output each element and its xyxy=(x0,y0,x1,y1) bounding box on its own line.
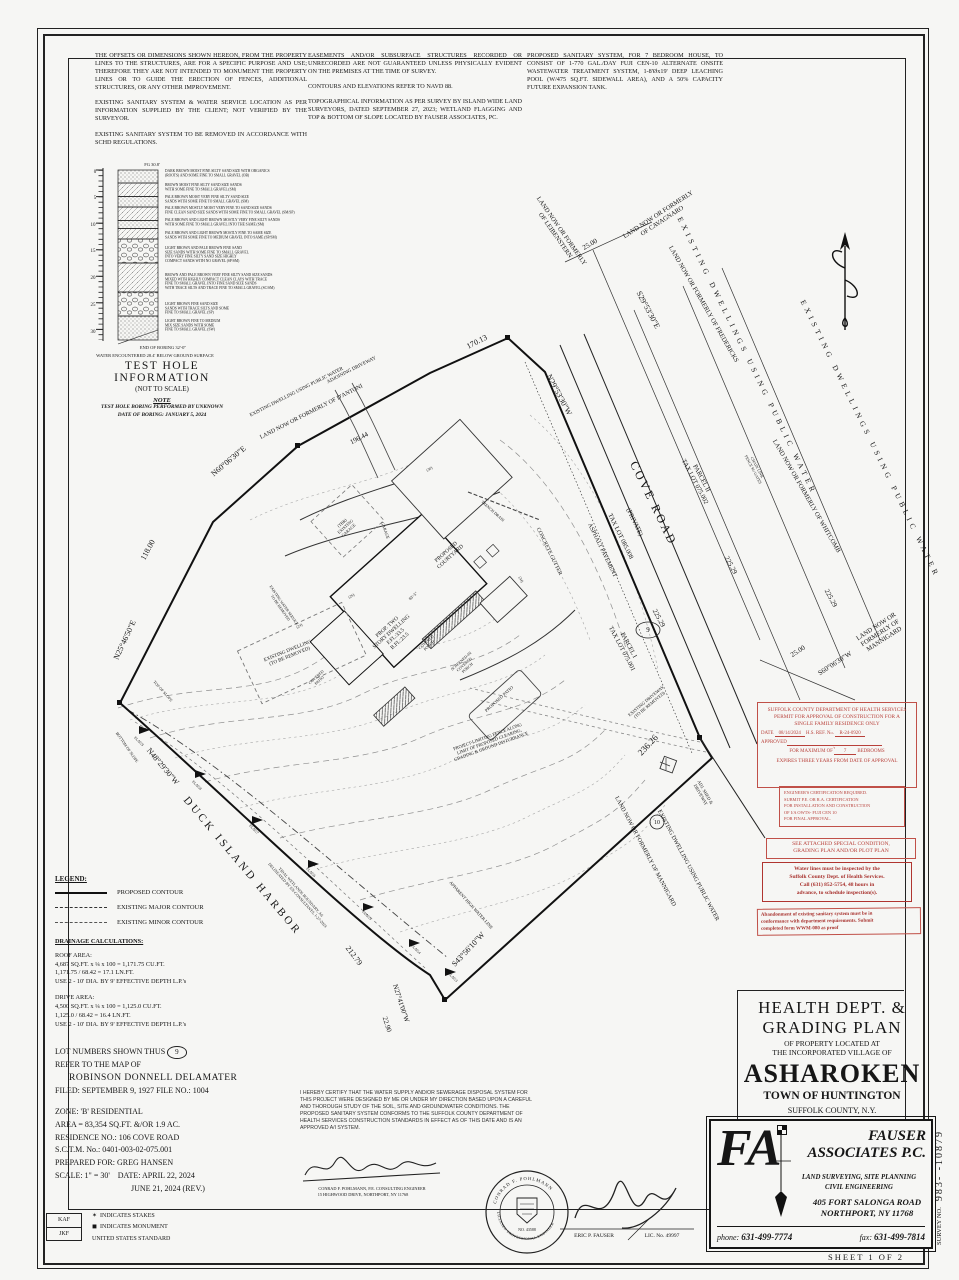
soil-description: SANDS WITH SOME FINE TO MEDIUM GRAVEL IN… xyxy=(165,235,278,239)
date-value: 08/14/2024 xyxy=(775,731,805,737)
map-label: TIDAL WETLANDS BOUNDARY, ASDELINEATED BY… xyxy=(266,859,331,930)
lot-line: LOT NUMBERS SHOWN THUS 9 xyxy=(55,1046,305,1059)
permit-header: SUFFOLK COUNTY DEPARTMENT OF HEALTH SERV… xyxy=(761,707,913,728)
note-paragraph: CONTOURS AND ELEVATIONS REFER TO NAVD 88… xyxy=(308,83,522,91)
soil-layer xyxy=(118,221,158,229)
firm-name: FAUSER ASSOCIATES P.C. xyxy=(806,1128,926,1163)
stake-icon: ✶ xyxy=(92,1213,97,1219)
note-paragraph: EASEMENTS AND/OR SUBSURFACE STRUCTURES R… xyxy=(308,52,522,76)
drive-area-calc: DRIVE AREA: 4,500 SQ.FT. x ¼ x 100 = 1,1… xyxy=(55,994,250,1029)
max-label: FOR MAXIMUM OF xyxy=(789,749,832,754)
map-label: 118.00 xyxy=(139,538,157,561)
village-name: ASHAROKEN xyxy=(739,1059,925,1089)
map-label: EXISTING DWELLING USING PUBLIC WATER xyxy=(249,366,345,418)
note-paragraph: EXISTING SANITARY SYSTEM & WATER SERVICE… xyxy=(95,99,307,123)
firm-phone: phone: 631-499-7774 xyxy=(717,1232,792,1242)
survey-number-label: SURVEY NO. xyxy=(936,1207,943,1245)
boring-descriptions: DARK BROWN MOIST FINE SILTY SAND SIZE WI… xyxy=(165,169,295,332)
map-label: 225.29 xyxy=(723,555,739,576)
map-label: 20 xyxy=(91,276,97,281)
note-paragraph: EXISTING SANITARY SYSTEM TO BE REMOVED I… xyxy=(95,131,307,147)
legend-item: EXISTING MAJOR CONTOUR xyxy=(55,904,230,911)
notes-column-1: THE OFFSETS OR DIMENSIONS SHOWN HEREON, … xyxy=(95,52,307,154)
map-label: LAND NOW OR FORMERLY OF MANNIGARD xyxy=(613,796,677,909)
map-label: APPARENT HIGH WATER LINE xyxy=(448,880,494,930)
map-label: FLAG5 xyxy=(361,910,372,921)
note-paragraph: TOPOGRAPHICAL INFORMATION AS PER SURVEY … xyxy=(308,98,522,122)
firm-fax: fax: 631-499-7814 xyxy=(860,1232,925,1242)
soil-layer xyxy=(118,207,158,221)
map-label: TRENCH DRAIN xyxy=(480,499,505,523)
initials-jkf: JKF xyxy=(47,1228,81,1241)
title-block-divider xyxy=(737,990,904,991)
map-label: END OF BORING 32'-0" xyxy=(140,345,187,350)
map-label: 236.26 xyxy=(636,732,661,757)
test-hole-title: TEST HOLE INFORMATION xyxy=(82,360,242,384)
permit-expiry: EXPIRES THREE YEARS FROM DATE OF APPROVA… xyxy=(761,758,913,764)
map-label: 15 xyxy=(91,249,97,254)
lot-line: FILED: SEPTEMBER 9, 1927 FILE NO.: 1004 xyxy=(55,1085,305,1097)
map-label: 22.90 xyxy=(381,1016,394,1034)
map-label: LAND NOW OR FORMERLY OF WHITCOMB xyxy=(771,438,842,554)
soil-layer xyxy=(118,239,158,263)
site-info: ZONE: 'B' RESIDENTIAL AREA = 83,354 SQ.F… xyxy=(55,1106,305,1196)
map-label: WATER ENCOUNTERED 28.4' BELOW GROUND SUR… xyxy=(96,353,214,358)
map-name: ROBINSON DONNELL DELAMATER xyxy=(69,1071,305,1085)
map-label: 0 xyxy=(94,170,97,175)
monument-key-row: ◼ INDICATES MONUMENT xyxy=(92,1222,170,1233)
soil-layer xyxy=(118,292,158,316)
map-label: N29°53'30"W xyxy=(545,373,574,418)
map-label: (PRIVATE) xyxy=(625,507,645,537)
permit-bedrooms-row: FOR MAXIMUM OF 7 BEDROOMS xyxy=(761,749,913,755)
map-label: PARCEL IITAX LOT 075.002 xyxy=(680,455,716,506)
map-label: FG 30.8' xyxy=(144,162,160,167)
survey-sheet: DARK BROWN MOIST FINE SILTY SAND SIZE WI… xyxy=(0,0,959,1280)
legend: LEGEND: PROPOSED CONTOUR EXISTING MAJOR … xyxy=(55,875,230,934)
map-label: EXISTING DWELLINGS USING PUBLIC WATER xyxy=(799,298,942,579)
proposed-contour-sample xyxy=(55,892,107,894)
existing-major-contour-sample xyxy=(55,907,107,908)
map-label: 212.79 xyxy=(344,944,364,967)
ref-value: R-24-0920 xyxy=(835,731,865,737)
map-label: 15 HIGHWOOD DRIVE, NORTHPORT, NY 11768 xyxy=(318,1192,409,1198)
reviewer-signature xyxy=(560,1181,694,1240)
soil-description: COMPACT SANDS WITH NO GRAVEL (SP/SM) xyxy=(165,259,240,263)
monument-icon: ◼ xyxy=(92,1224,97,1230)
soil-description: FINE TO SMALL GRAVEL (SP) xyxy=(165,311,214,315)
map-label: 225.29 xyxy=(823,588,839,609)
initials-kaf: KAF xyxy=(47,1214,81,1228)
map-label: PARCEL ITAX LOT 075.001 xyxy=(607,622,643,673)
firm-name-2: ASSOCIATES P.C. xyxy=(806,1145,926,1162)
pe-seal: CONRAD F. POHLMANN LICENSED PROFESSIONAL… xyxy=(486,1171,568,1253)
note-paragraph: THE OFFSETS OR DIMENSIONS SHOWN HEREON, … xyxy=(95,52,307,92)
special-condition-stamp: SEE ATTACHED SPECIAL CONDITION, GRADING … xyxy=(766,838,916,859)
map-label: LAND NOW OR FORMERLY OF D'ANTONI xyxy=(259,383,364,440)
stakes-key-row: ✶ INDICATES STAKES xyxy=(92,1211,170,1222)
lot-number-bubble: 9 xyxy=(167,1046,187,1059)
roof-area-calc: ROOF AREA: 4,687 SQ.FT. x ¼ x 100 = 1,17… xyxy=(55,952,250,987)
legend-label: EXISTING MAJOR CONTOUR xyxy=(117,904,204,911)
firm-service-1: LAND SURVEYING, SITE PLANNING xyxy=(789,1173,929,1183)
lot-line: REFER TO THE MAP OF xyxy=(55,1059,305,1071)
map-label: S29°53'30"E xyxy=(635,290,662,331)
existing-major-contours xyxy=(118,440,645,900)
soil-layer xyxy=(118,316,158,340)
firm-contact: phone: 631-499-7774 fax: 631-499-7814 xyxy=(717,1226,925,1242)
county-name: SUFFOLK COUNTY, N.Y. xyxy=(739,1106,925,1115)
north-arrow-icon xyxy=(833,232,858,330)
map-label: CONCRETE GUTTER xyxy=(535,527,563,577)
soil-description: SANDS WITH SOME FINE TO SMALL GRAVEL (SM… xyxy=(165,199,249,203)
town-name: TOWN OF HUNTINGTON xyxy=(739,1090,925,1103)
firm-address-2: NORTHPORT, NY 11768 xyxy=(806,1208,928,1219)
map-label: 10 xyxy=(91,223,97,228)
soil-description: (ROOTS) AND SOME FINE TO SMALL GRAVEL (O… xyxy=(165,173,250,177)
water-lines-stamp: Water lines must be inspected by the Suf… xyxy=(762,862,912,902)
test-hole-note-label: NOTE xyxy=(82,397,242,404)
health-permit-stamp: SUFFOLK COUNTY DEPARTMENT OF HEALTH SERV… xyxy=(757,702,917,788)
sheet-number: SHEET 1 OF 2 xyxy=(828,1252,904,1262)
soil-layer xyxy=(118,229,158,240)
adj-shed xyxy=(660,756,677,773)
map-label: (TBR)EXISTINGGARAGE xyxy=(333,515,357,539)
test-hole-boring-log: DARK BROWN MOIST FINE SILTY SAND SIZE WI… xyxy=(96,168,295,344)
legend-label: EXISTING MINOR CONTOUR xyxy=(117,919,203,926)
map-label: ERIC P. FAUSER xyxy=(574,1233,614,1239)
map-label: TOP OF SLOPE xyxy=(152,679,174,703)
firm-services: LAND SURVEYING, SITE PLANNING CIVIL ENGI… xyxy=(789,1173,929,1192)
map-label: FLAG7 xyxy=(248,824,259,835)
map-label: 25 xyxy=(91,303,97,308)
map-label: N25°46'50"E xyxy=(112,619,138,661)
map-label: EXISTING DWELLING USING PUBLIC WATER xyxy=(656,809,720,922)
map-label: S43°56'10"W xyxy=(450,930,487,969)
soil-description: FINE CLEAN SAND SIZE SANDS WITH SOME FIN… xyxy=(165,210,295,214)
map-label: LIC. No. 49997 xyxy=(645,1233,680,1239)
ref-label: H.S. REF. No. xyxy=(806,731,834,736)
permit-approved-row: APPROVED xyxy=(761,740,913,746)
map-label: COVEREDPATIO xyxy=(307,669,328,689)
notes-column-2: EASEMENTS AND/OR SUBSURFACE STRUCTURES R… xyxy=(308,52,522,129)
map-label: LAND NOW OR FORMERLYOF LEIBENSTERN xyxy=(529,196,588,272)
initials-box: KAF JKF xyxy=(46,1213,82,1241)
note-paragraph: PROPOSED SANITARY SYSTEM, FOR 7 BEDROOM … xyxy=(527,52,723,92)
bedrooms-label: BEDROOMS xyxy=(857,749,884,754)
map-label: FLAG9 xyxy=(133,736,144,747)
firm-address-1: 405 FORT SALONGA ROAD xyxy=(806,1197,928,1208)
map-label: EXISTING DRIVEWAY(TO BE REMOVED) xyxy=(627,684,669,721)
map-label: 25.00 xyxy=(789,643,807,659)
seal-number: NO. 43588 xyxy=(518,1227,536,1232)
firm-service-2: CIVIL ENGINEERING xyxy=(789,1183,929,1193)
survey-number-value: 983- -10879 xyxy=(934,1130,945,1201)
map-label: ADJ. SHED &DRIVEWAY xyxy=(692,779,715,808)
plan-title: HEALTH DEPT. & xyxy=(739,998,925,1018)
soil-layer xyxy=(118,170,158,183)
standard-row: UNITED STATES STANDARD xyxy=(92,1234,170,1245)
map-label: FLAG3 xyxy=(447,972,458,983)
map-label: LAND NOW ORFORMERLY OFMANNIGARD xyxy=(855,611,906,655)
map-label: S60°06'30"W xyxy=(817,649,854,677)
soil-description: WITH TRACE SILTS AND TRACE FINE TO SMALL… xyxy=(165,286,275,290)
drainage-calculations: DRAINAGE CALCULATIONS: ROOF AREA: 4,687 … xyxy=(55,938,250,1029)
symbols-key: ✶ INDICATES STAKES ◼ INDICATES MONUMENT … xyxy=(92,1211,170,1245)
map-label: 196.44 xyxy=(349,430,370,446)
map-label: CHAIN LINKFENCE W/ GATES xyxy=(744,452,767,485)
soil-layer xyxy=(118,183,158,197)
map-label: N60°06'30"E xyxy=(209,444,247,478)
map-label: 10 xyxy=(654,820,660,826)
legend-header: LEGEND: xyxy=(55,875,230,883)
bedrooms-value: 7 xyxy=(834,749,856,755)
map-label: FLAG8 xyxy=(191,780,202,791)
permit-date-row: DATE 08/14/2024 H.S. REF. No. R-24-0920 xyxy=(761,731,913,737)
map-label: N27°41'00"W xyxy=(391,983,411,1023)
plumb-bob-icon xyxy=(771,1133,791,1223)
approved-label: APPROVED xyxy=(761,740,787,745)
survey-number-edge: SURVEY NO. 983- -10879 xyxy=(934,1035,945,1245)
soil-description: FINE TO SMALL GRAVEL (SW) xyxy=(165,328,216,332)
test-hole-subtitle: (NOT TO SCALE) xyxy=(82,385,242,393)
map-label: 9 xyxy=(646,626,650,634)
approved-signature xyxy=(787,740,882,746)
legend-item: PROPOSED CONTOUR xyxy=(55,889,230,896)
drainage-header: DRAINAGE CALCULATIONS: xyxy=(55,938,250,947)
abandonment-stamp: Abandonment of existing sanitary system … xyxy=(757,907,921,936)
test-hole-caption: TEST HOLE INFORMATION (NOT TO SCALE) NOT… xyxy=(82,360,242,420)
date-label: DATE xyxy=(761,731,774,736)
legend-label: PROPOSED CONTOUR xyxy=(117,889,183,896)
notes-column-3: PROPOSED SANITARY SYSTEM, FOR 7 BEDROOM … xyxy=(527,52,723,99)
engineer-cert-stamp: ENGINEER'S CERTIFICATION REQUIRED. SUBMI… xyxy=(779,786,905,827)
soil-layer xyxy=(118,197,158,208)
test-hole-note: TEST HOLE BORING PERFORMED BY UNKNOWN DA… xyxy=(82,404,242,420)
map-label: (34) xyxy=(518,576,525,584)
map-label: FLAG4 xyxy=(410,944,421,955)
soil-layer xyxy=(118,263,158,292)
title-block: HEALTH DEPT. & GRADING PLAN OF PROPERTY … xyxy=(739,998,925,1116)
firm-name-1: FAUSER xyxy=(806,1128,926,1145)
map-label: 30 xyxy=(91,330,97,335)
map-label: EXISTING DWELLING(TO BE REMOVED) xyxy=(263,640,314,669)
map-label: PROJECT-LIMITING FENCE ALONGLIMIT OF PRO… xyxy=(450,721,529,762)
map-label: COVE ROAD xyxy=(627,459,680,548)
map-label: EXISTING WATER SERVICETO BE REMOVED xyxy=(265,585,299,629)
soil-description: WITH SOME FINE TO SMALL GRAVEL INTO THE … xyxy=(165,222,265,226)
engineer-signature xyxy=(303,1157,440,1181)
firm-box: FA FAUSER ASSOCIATES P.C. LAND SURVEYING… xyxy=(709,1119,933,1249)
plan-subtitle: THE INCORPORATED VILLAGE OF xyxy=(739,1049,925,1058)
lot-line1-text: LOT NUMBERS SHOWN THUS xyxy=(55,1047,165,1056)
lot-reference: LOT NUMBERS SHOWN THUS 9 REFER TO THE MA… xyxy=(55,1046,305,1097)
existing-minor-contours xyxy=(130,415,665,932)
plan-title: GRADING PLAN xyxy=(739,1018,925,1038)
legend-item: EXISTING MINOR CONTOUR xyxy=(55,919,230,926)
existing-minor-contour-sample xyxy=(55,922,107,923)
soil-description: WITH SOME FINE TO SMALL GRAVEL (SM) xyxy=(165,187,237,191)
map-label: 25.00 xyxy=(581,237,599,252)
firm-address: 405 FORT SALONGA ROAD NORTHPORT, NY 1176… xyxy=(806,1197,928,1218)
certification-text: I HEREBY CERTIFY THAT THE WATER SUPPLY A… xyxy=(300,1090,532,1132)
